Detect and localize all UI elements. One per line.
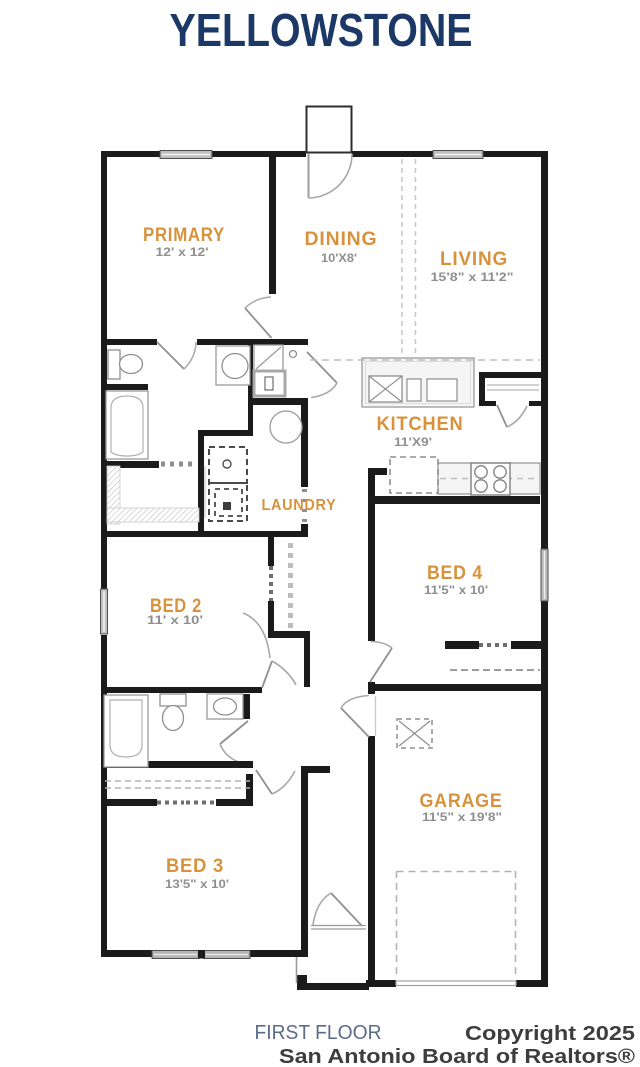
svg-text:11'X9': 11'X9' (394, 435, 432, 449)
svg-text:13'5" x 10': 13'5" x 10' (165, 877, 229, 891)
svg-text:BED 4: BED 4 (427, 563, 483, 584)
svg-text:10'X8': 10'X8' (321, 251, 357, 265)
svg-text:11'5" x 19'8": 11'5" x 19'8" (422, 810, 502, 824)
svg-text:PRIMARY: PRIMARY (143, 225, 225, 246)
svg-text:FIRST FLOOR: FIRST FLOOR (255, 1022, 382, 1044)
svg-text:KITCHEN: KITCHEN (377, 414, 464, 435)
svg-text:11' x 10': 11' x 10' (147, 613, 203, 627)
svg-text:San Antonio Board of Realtors®: San Antonio Board of Realtors® (279, 1046, 635, 1067)
svg-text:DINING: DINING (305, 229, 378, 250)
svg-text:11'5" x 10': 11'5" x 10' (424, 583, 488, 597)
svg-text:GARAGE: GARAGE (420, 791, 503, 812)
svg-text:LIVING: LIVING (440, 249, 508, 270)
svg-text:Copyright 2025: Copyright 2025 (465, 1023, 635, 1045)
svg-text:BED 3: BED 3 (166, 856, 224, 877)
svg-text:12' x 12': 12' x 12' (156, 245, 209, 259)
svg-text:15'8" x 11'2": 15'8" x 11'2" (431, 270, 514, 284)
svg-text:LAUNDRY: LAUNDRY (262, 497, 337, 514)
svg-text:YELLOWSTONE: YELLOWSTONE (170, 4, 473, 56)
